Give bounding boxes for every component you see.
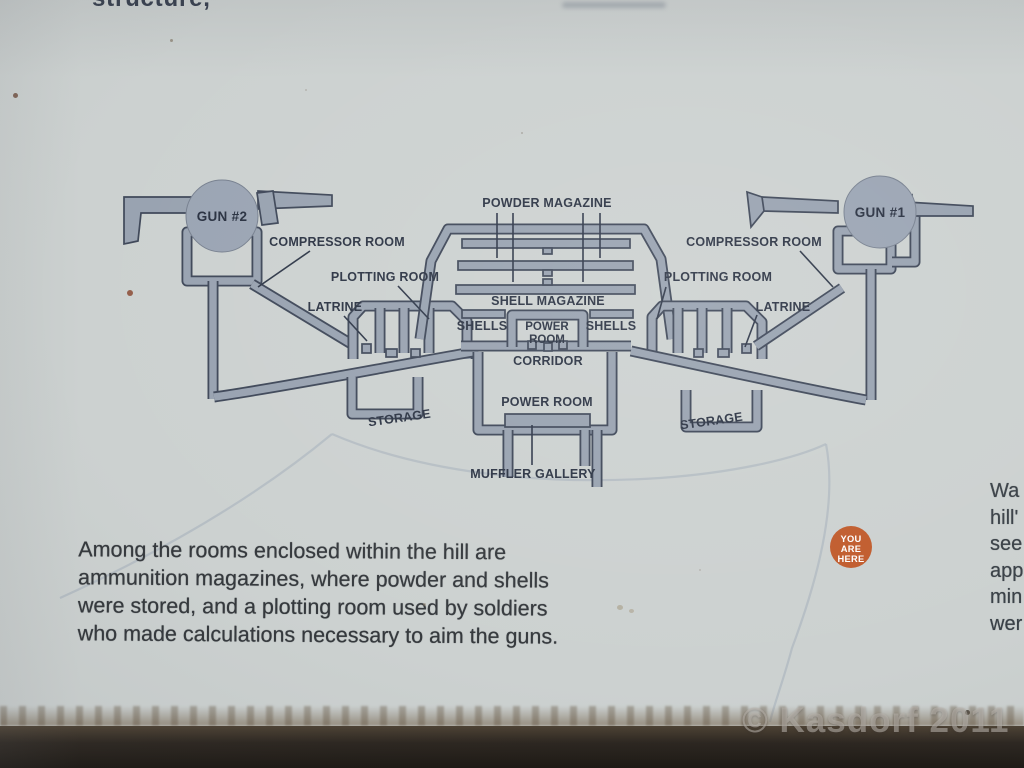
- compressor-room-right-label: COMPRESSOR ROOM: [686, 235, 822, 249]
- speck: [521, 132, 523, 134]
- shells-bar-right: [590, 310, 633, 318]
- top-faded-text-smudge: [562, 2, 666, 8]
- magazine-bar: [462, 239, 630, 248]
- magazine-bar: [458, 261, 633, 270]
- bunker-floorplan-diagram: POWDER MAGAZINE GUN #2 GUN #1 COMPRESSOR…: [0, 0, 1024, 768]
- right-edge-line: app: [990, 558, 1024, 585]
- latrine-fixture: [386, 349, 397, 357]
- corridor-label: CORRIDOR: [513, 354, 583, 368]
- magazine-bar-tab: [543, 279, 552, 285]
- right-edge-line: wer: [990, 611, 1024, 638]
- compressor-room-left-label: COMPRESSOR ROOM: [269, 235, 405, 249]
- caption-line: ammunition magazines, where powder and s…: [78, 563, 559, 594]
- caption-text: Among the rooms enclosed within the hill…: [78, 535, 559, 650]
- caption-line: who made calculations necessary to aim t…: [78, 619, 559, 650]
- speck: [617, 605, 623, 610]
- latrine-fixture: [742, 344, 751, 353]
- magazine-bar-tab: [543, 270, 552, 276]
- right-edge-line: see: [990, 531, 1024, 558]
- caption-line: Among the rooms enclosed within the hill…: [78, 535, 559, 566]
- magazine-bar-tab: [543, 248, 552, 254]
- photo-watermark: © Kasdorf 2011: [742, 701, 1009, 741]
- plotting-room-left-label: PLOTTING ROOM: [331, 270, 439, 284]
- shell-magazine-label: SHELL MAGAZINE: [491, 294, 605, 308]
- you-are-here-line3: HERE: [837, 554, 864, 564]
- right-edge-line: min: [990, 584, 1024, 611]
- plotting-room-right-label: PLOTTING ROOM: [664, 270, 772, 284]
- latrine-left-label: LATRINE: [308, 300, 363, 314]
- power-room-lower-label: POWER ROOM: [501, 395, 593, 409]
- caption-line: were stored, and a plotting room used by…: [78, 591, 559, 622]
- speck: [170, 39, 173, 42]
- latrine-fixture: [411, 349, 420, 357]
- top-cutoff-text: structure,: [92, 0, 211, 13]
- magazine-bar: [456, 285, 635, 294]
- shells-right-label: SHELLS: [586, 319, 637, 333]
- speck: [127, 290, 133, 296]
- latrine-fixture: [362, 344, 371, 353]
- speck: [423, 603, 426, 606]
- shells-left-label: SHELLS: [457, 319, 508, 333]
- right-edge-line: Wa: [990, 478, 1024, 505]
- trail-segment: [770, 444, 829, 722]
- speck: [629, 609, 634, 613]
- right-west-arm-bar: [762, 197, 838, 213]
- latrine-fixture: [694, 349, 703, 357]
- gun2-label: GUN #2: [197, 209, 248, 224]
- speck: [13, 93, 18, 98]
- you-are-here-line1: YOU: [840, 534, 861, 544]
- latrine-fixture: [718, 349, 729, 357]
- right-edge-line: hill': [990, 505, 1024, 532]
- speck: [699, 569, 701, 571]
- you-are-here-marker: YOU ARE HERE: [830, 526, 872, 568]
- muffler-gallery-label: MUFFLER GALLERY: [470, 467, 596, 481]
- power-room-upper-label-line2: ROOM: [529, 334, 565, 346]
- shells-bar-left: [462, 310, 505, 318]
- speck: [305, 89, 307, 91]
- latrine-right-label: LATRINE: [756, 300, 811, 314]
- you-are-here-line2: ARE: [841, 544, 862, 554]
- muffler-gallery-bar: [505, 414, 590, 427]
- sign-photo: structure,: [0, 0, 1024, 768]
- gun1-label: GUN #1: [855, 205, 906, 220]
- right-arm-flare: [747, 192, 764, 227]
- powder-magazine-label: POWDER MAGAZINE: [482, 196, 611, 210]
- power-room-upper-label-line1: POWER: [525, 321, 569, 333]
- right-edge-cutoff-text: Wa hill' see app min wer: [990, 478, 1024, 637]
